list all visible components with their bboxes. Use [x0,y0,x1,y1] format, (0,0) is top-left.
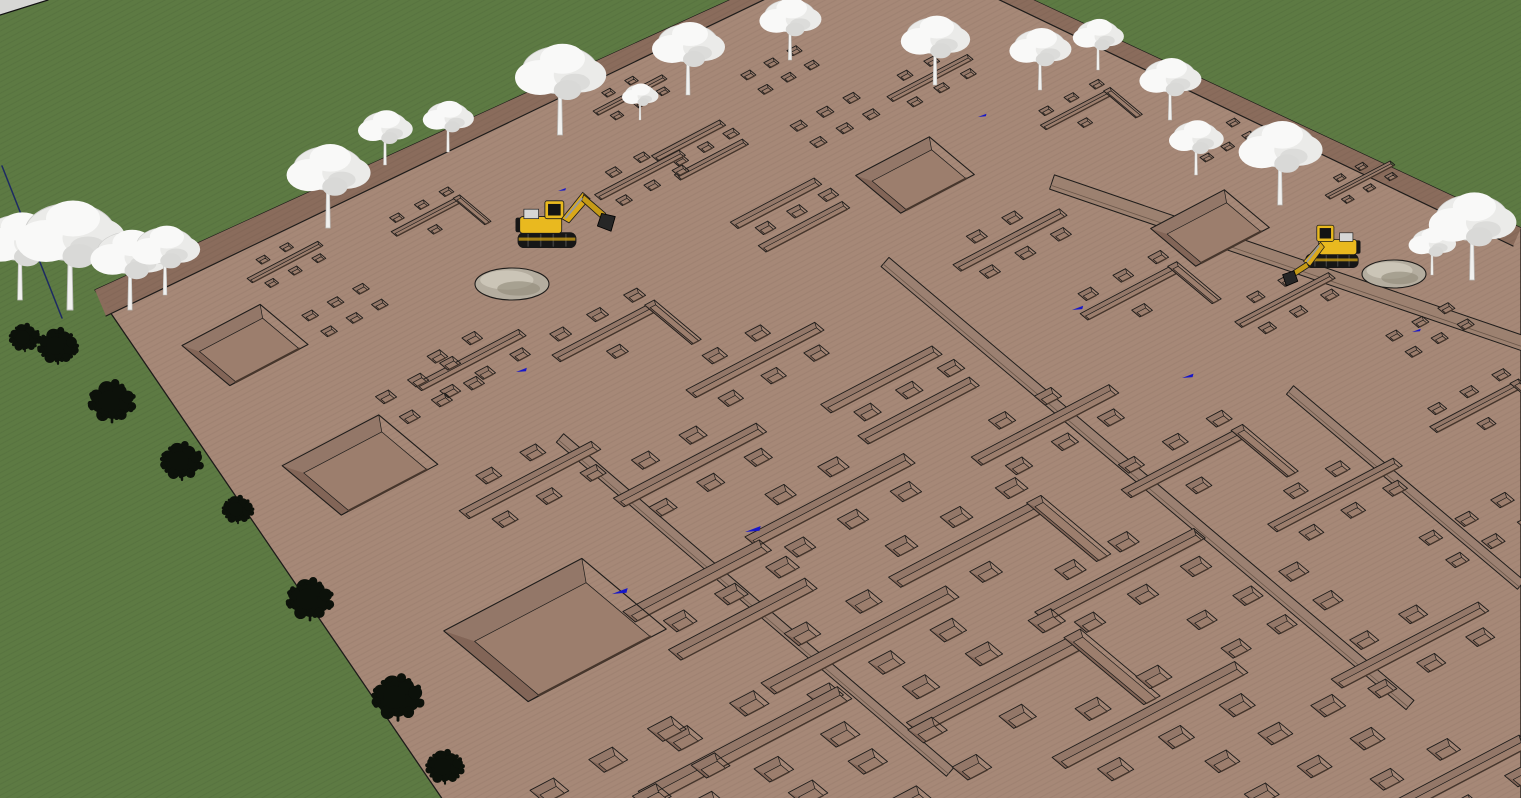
spoil-heap [1362,260,1426,288]
spoil-heap [475,268,549,300]
3d-viewport[interactable] [0,0,1521,798]
scene-svg [0,0,1521,798]
